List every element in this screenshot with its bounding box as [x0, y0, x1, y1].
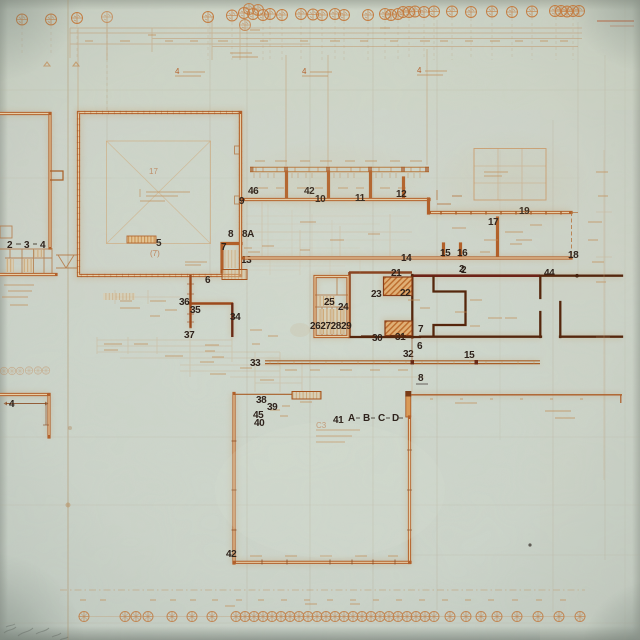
svg-text:38: 38: [256, 395, 267, 406]
svg-text:23: 23: [371, 289, 382, 300]
svg-text:4: 4: [302, 67, 307, 76]
svg-text:2: 2: [459, 264, 465, 275]
svg-text:7: 7: [418, 324, 424, 335]
svg-text:26272829: 26272829: [310, 321, 352, 332]
svg-text:6: 6: [417, 341, 423, 352]
svg-text:35: 35: [190, 305, 201, 316]
svg-text:34: 34: [230, 312, 241, 323]
svg-text:16: 16: [457, 248, 468, 259]
svg-text:18: 18: [568, 250, 579, 261]
svg-text:4: 4: [417, 66, 422, 75]
svg-text:21: 21: [391, 268, 402, 279]
svg-text:6: 6: [205, 275, 211, 286]
svg-text:14: 14: [401, 253, 412, 264]
svg-text:2: 2: [7, 240, 13, 251]
svg-text:B: B: [363, 413, 370, 424]
svg-text:8A: 8A: [242, 229, 254, 240]
svg-text:4: 4: [9, 399, 15, 410]
svg-text:3: 3: [24, 240, 30, 251]
svg-text:22: 22: [400, 288, 411, 299]
svg-text:37: 37: [184, 330, 195, 341]
svg-text:44: 44: [544, 268, 555, 279]
svg-text:33: 33: [250, 358, 261, 369]
svg-text:30: 30: [372, 333, 383, 344]
svg-text:15: 15: [440, 248, 451, 259]
svg-text:24: 24: [338, 302, 349, 313]
svg-text:42: 42: [226, 549, 237, 560]
svg-text:D: D: [392, 413, 399, 424]
svg-text:15: 15: [464, 350, 475, 361]
svg-text:7: 7: [221, 242, 227, 253]
svg-text:8: 8: [418, 373, 424, 384]
svg-text:(7): (7): [150, 249, 160, 258]
svg-text:C: C: [378, 413, 385, 424]
svg-text:39: 39: [267, 402, 278, 413]
svg-text:40: 40: [254, 418, 265, 429]
svg-text:4: 4: [175, 67, 180, 76]
svg-text:25: 25: [324, 297, 335, 308]
svg-text:4: 4: [40, 240, 46, 251]
svg-text:36: 36: [179, 297, 190, 308]
svg-text:8: 8: [228, 229, 234, 240]
svg-text:A: A: [348, 413, 355, 424]
